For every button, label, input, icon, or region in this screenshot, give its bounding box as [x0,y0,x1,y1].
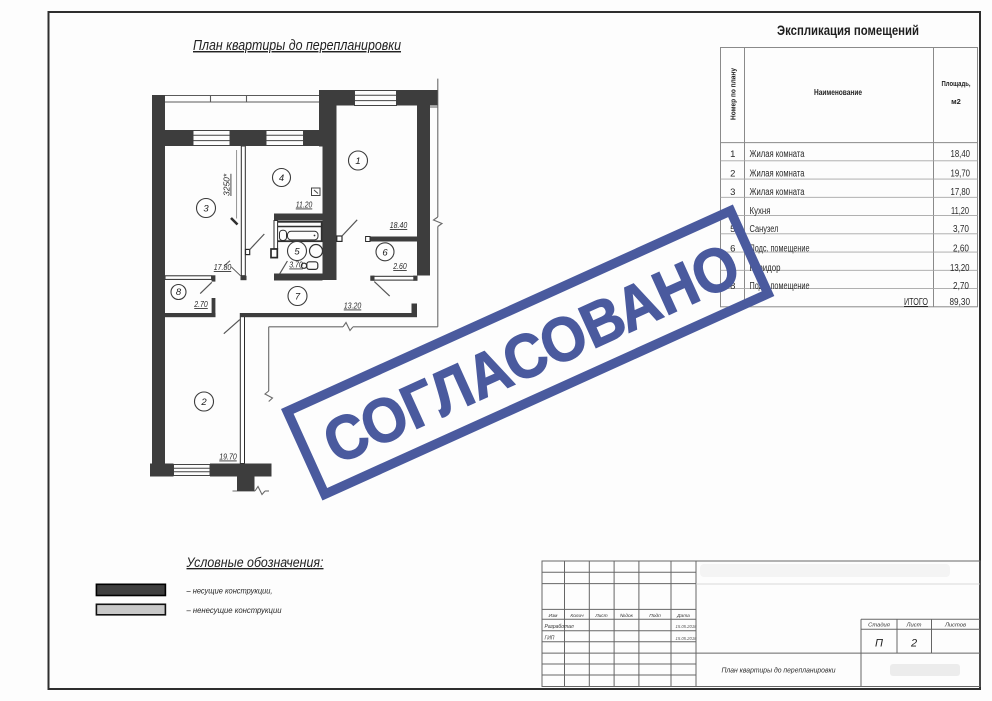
svg-text:СОГЛАСОВАНО: СОГЛАСОВАНО [313,230,750,478]
